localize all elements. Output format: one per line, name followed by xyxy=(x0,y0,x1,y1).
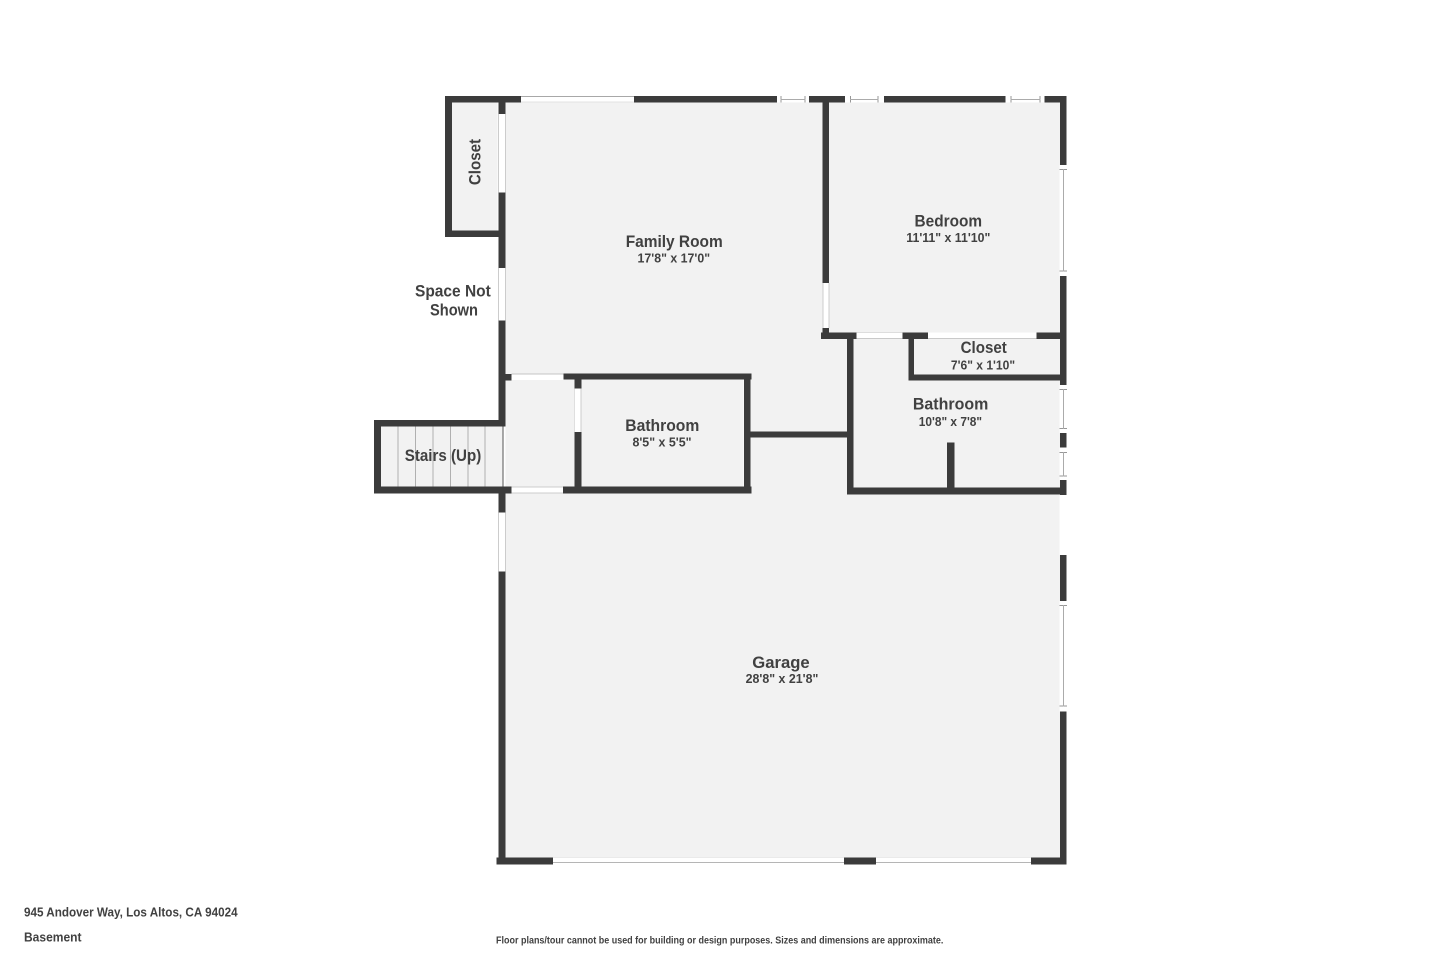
svg-text:Shown: Shown xyxy=(430,301,478,320)
svg-text:Closet: Closet xyxy=(466,139,485,185)
svg-text:Floor plans/tour cannot be use: Floor plans/tour cannot be used for buil… xyxy=(496,936,943,947)
svg-text:7'6" x 1'10": 7'6" x 1'10" xyxy=(951,357,1015,372)
svg-text:10'8" x 7'8": 10'8" x 7'8" xyxy=(919,414,982,429)
svg-text:Space Not: Space Not xyxy=(415,281,491,300)
svg-text:8'5" x 5'5": 8'5" x 5'5" xyxy=(632,435,691,450)
svg-text:17'8" x 17'0": 17'8" x 17'0" xyxy=(638,251,711,266)
svg-text:Family Room: Family Room xyxy=(626,232,723,251)
svg-text:Stairs (Up): Stairs (Up) xyxy=(405,446,482,465)
svg-text:Bathroom: Bathroom xyxy=(625,416,699,435)
svg-text:Garage: Garage xyxy=(752,653,809,672)
svg-text:Bathroom: Bathroom xyxy=(913,395,988,414)
svg-text:11'11" x 11'10": 11'11" x 11'10" xyxy=(906,230,990,245)
svg-text:Bedroom: Bedroom xyxy=(915,212,983,231)
svg-text:Basement: Basement xyxy=(24,930,82,944)
svg-text:Closet: Closet xyxy=(961,338,1007,357)
svg-text:945 Andover Way, Los Altos, CA: 945 Andover Way, Los Altos, CA 94024 xyxy=(24,905,238,919)
svg-text:28'8" x 21'8": 28'8" x 21'8" xyxy=(746,671,819,686)
